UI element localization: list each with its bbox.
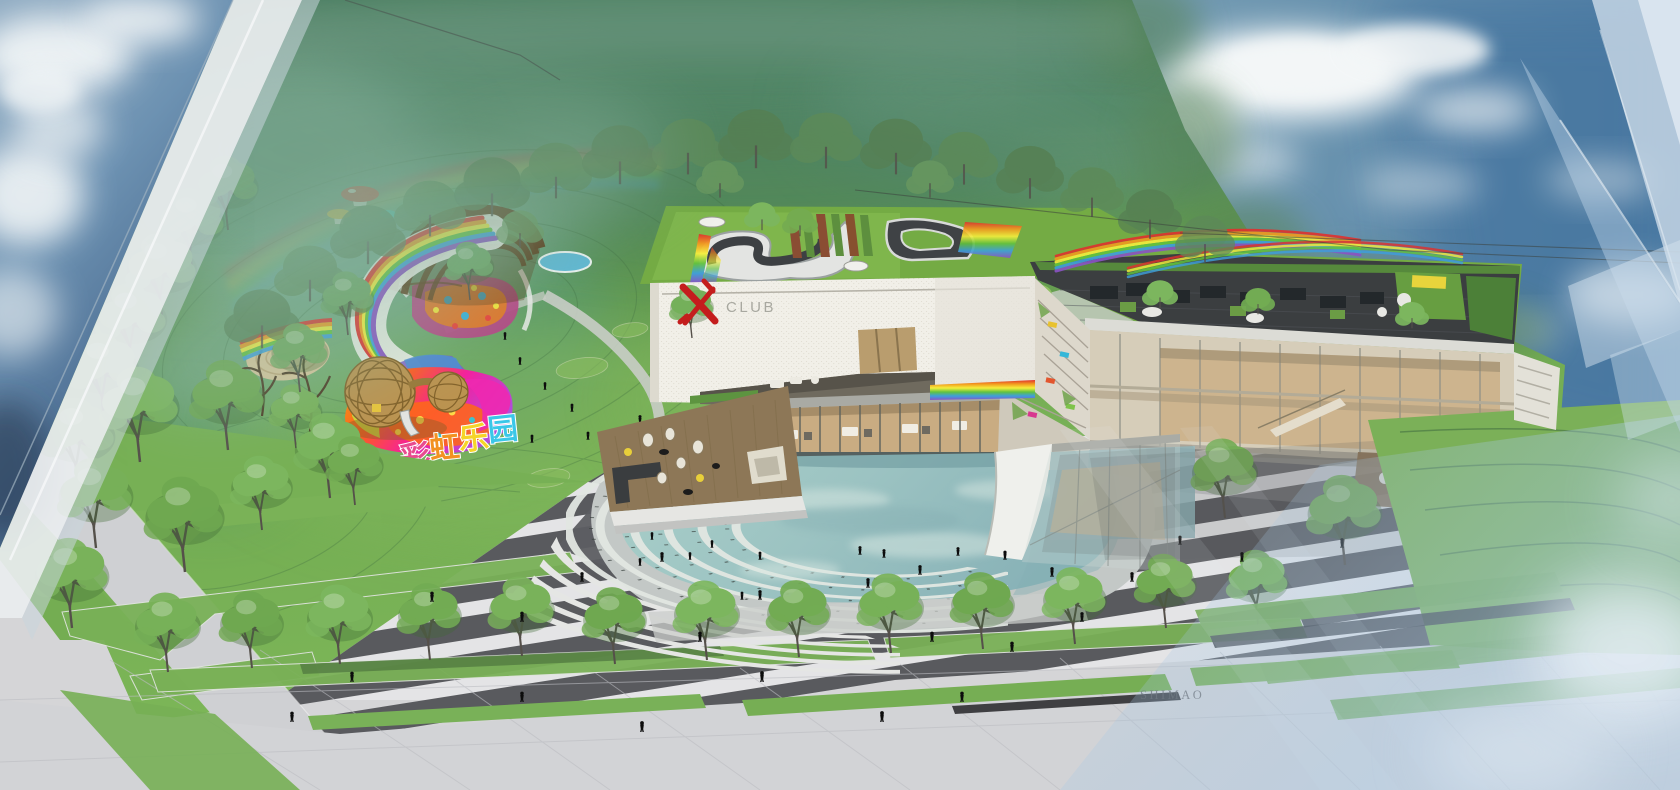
svg-text:园: 园 bbox=[486, 412, 519, 448]
svg-text:乐: 乐 bbox=[457, 421, 490, 457]
svg-text:CLUB: CLUB bbox=[726, 299, 776, 316]
